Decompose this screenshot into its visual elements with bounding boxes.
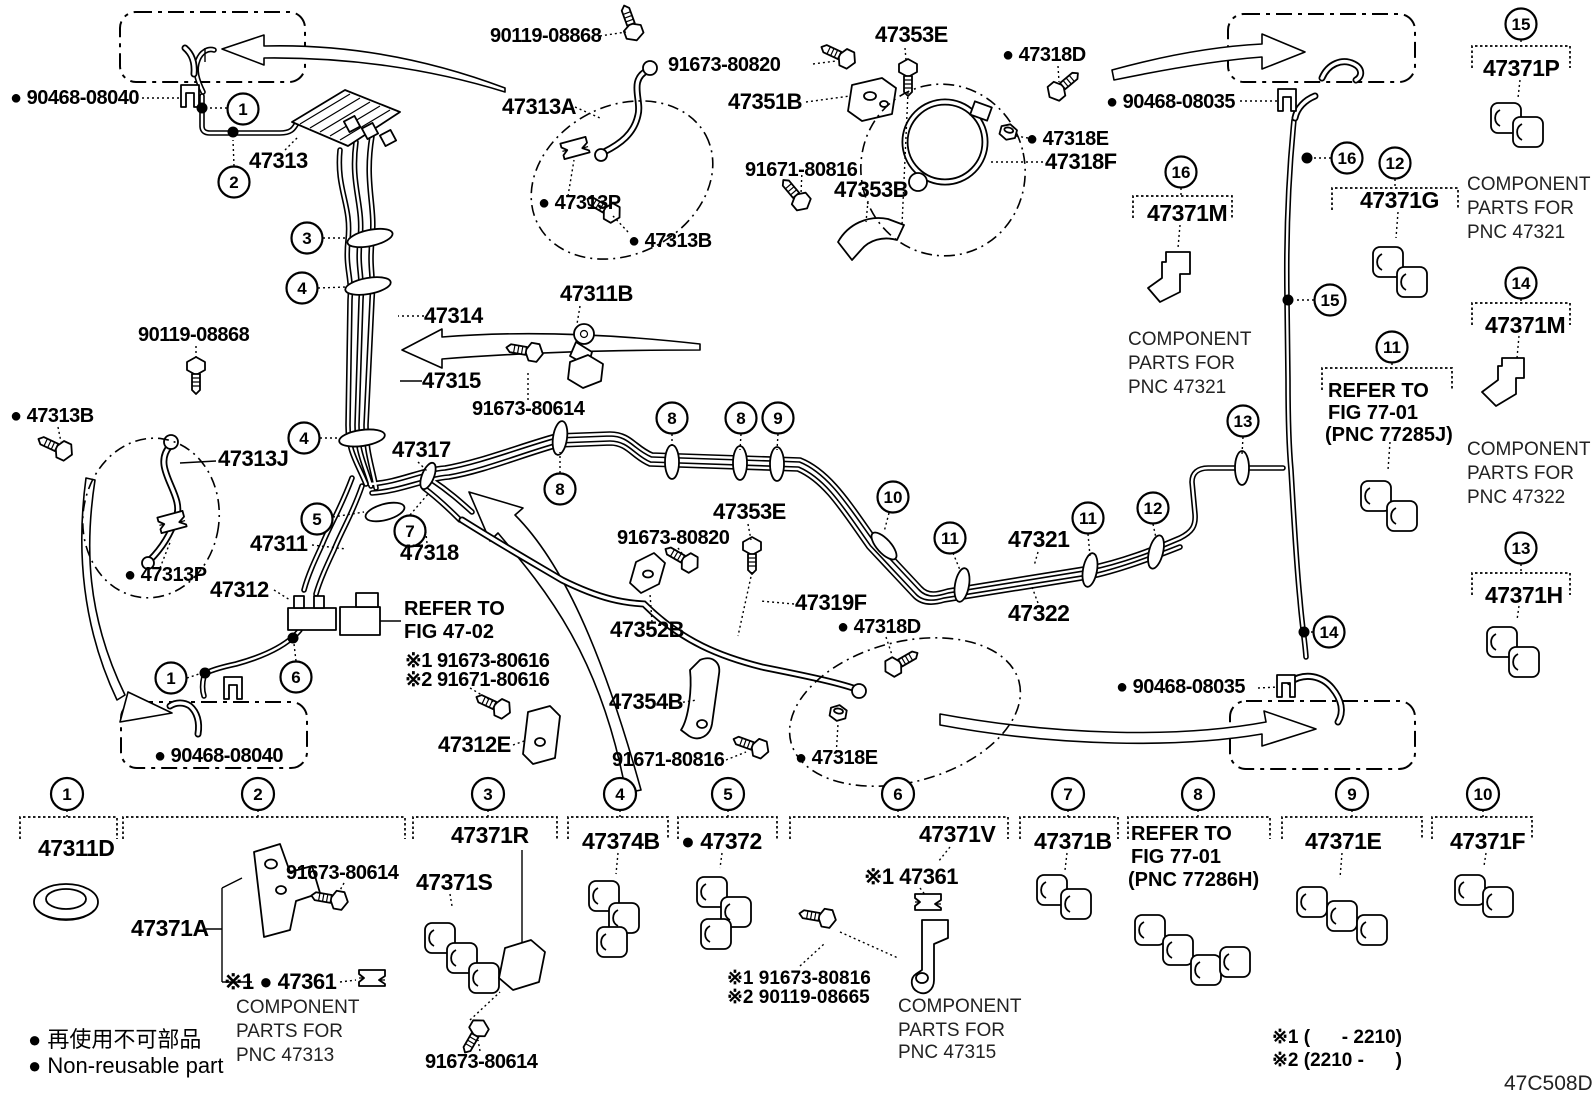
part-label-91673-80820-mid[interactable]: 91673-80820 xyxy=(617,527,730,549)
callout-14-a[interactable]: 14 xyxy=(1506,268,1537,299)
component-note-47315-line2: PARTS FOR xyxy=(898,1020,1005,1041)
bolt-47353E-top xyxy=(899,59,917,96)
clip-90468-08035-top xyxy=(1278,89,1296,111)
clamp-47371R-glyph xyxy=(425,923,545,993)
brake-actuator xyxy=(292,90,400,146)
bracket-47312E xyxy=(523,706,560,764)
part-label-47318E-mid[interactable]: ● 47318E xyxy=(795,747,878,769)
part-label-47315[interactable]: 47315 xyxy=(422,368,481,393)
refer-fig4702-block xyxy=(340,593,401,635)
part-label-47311[interactable]: 47311 xyxy=(250,531,308,556)
callout-group-8[interactable]: 8 xyxy=(1182,778,1214,810)
svg-text:12: 12 xyxy=(1386,154,1405,173)
refer-fig7701a-line1: REFER TO xyxy=(1328,380,1429,402)
part-label-91671-80816-mid[interactable]: 91671-80816 xyxy=(612,749,725,771)
part-label-47371G[interactable]: 47371G xyxy=(1360,187,1439,213)
callout-group-7[interactable]: 7 xyxy=(1052,778,1084,810)
part-label-47319F[interactable]: 47319F xyxy=(795,590,867,615)
diagram-code: 47C508D xyxy=(1504,1072,1592,1095)
bolt-90119-08868-top xyxy=(616,2,646,43)
note-91673-80816-g6[interactable]: ※1 91673-80816 xyxy=(727,968,871,989)
callout-group-5[interactable]: 5 xyxy=(712,778,744,810)
svg-text:14: 14 xyxy=(1320,623,1339,642)
svg-text:13: 13 xyxy=(1512,539,1531,558)
clamp-47371M16-glyph xyxy=(1148,252,1190,302)
callout-15-b[interactable]: 15 xyxy=(1506,9,1537,40)
part-label-47322[interactable]: 47322 xyxy=(1008,600,1069,626)
callout-4-b[interactable]: 4 xyxy=(289,423,320,454)
clamp-47371P-glyph xyxy=(1491,103,1543,147)
svg-text:12: 12 xyxy=(1144,499,1163,518)
component-note-47315-line3: PNC 47315 xyxy=(898,1042,996,1063)
clip-47313P-top xyxy=(560,137,589,159)
callout-10-a[interactable]: 10 xyxy=(878,482,909,513)
part-label-47314[interactable]: 47314 xyxy=(424,303,484,328)
svg-text:9: 9 xyxy=(773,409,782,428)
svg-text:7: 7 xyxy=(405,522,414,541)
clamp-47371B-glyph xyxy=(1037,875,1091,919)
part-label-47312[interactable]: 47312 xyxy=(210,577,269,602)
callout-11-b[interactable]: 11 xyxy=(1073,503,1104,534)
grommet-47311D xyxy=(34,884,98,920)
part-label-91673-80614-g3[interactable]: 91673-80614 xyxy=(425,1051,539,1073)
svg-text:6: 6 xyxy=(893,785,902,804)
svg-text:8: 8 xyxy=(1193,785,1202,804)
callout-group-6[interactable]: 6 xyxy=(882,778,914,810)
bracket-47352B xyxy=(630,553,665,593)
callout-1-a[interactable]: 1 xyxy=(228,94,259,125)
refer-fig7701b-line3: (PNC 77286H) xyxy=(1128,869,1259,891)
svg-text:5: 5 xyxy=(723,785,732,804)
footnote-1: ※1 ( - 2210) xyxy=(1272,1027,1402,1048)
clamp-47371H-glyph xyxy=(1487,627,1539,677)
callout-8-c[interactable]: 8 xyxy=(726,403,757,434)
part-label-47374B[interactable]: 47374B xyxy=(582,828,660,854)
part-label-90468-08040-bottom[interactable]: ● 90468-08040 xyxy=(154,745,283,767)
svg-text:4: 4 xyxy=(299,429,309,448)
svg-text:11: 11 xyxy=(1079,509,1097,528)
part-label-91673-80614-mid[interactable]: 91673-80614 xyxy=(472,398,586,420)
clamp-fig7701a-glyph xyxy=(1361,481,1417,531)
svg-text:10: 10 xyxy=(884,488,903,507)
part-label-47312E[interactable]: 47312E xyxy=(438,732,511,757)
callouts-layer: 1 2 3 4 4 5 7 6 1 8 8 8 9 10 11 11 12 13… xyxy=(51,9,1537,811)
part-label-47318F[interactable]: 47318F xyxy=(1045,149,1117,174)
part-label-47352B[interactable]: 47352B xyxy=(610,617,684,642)
callout-14-b[interactable]: 14 xyxy=(1314,617,1345,648)
part-label-47361-g6[interactable]: ※1 47361 xyxy=(864,864,958,889)
part-label-47313P-mid[interactable]: ● 47313P xyxy=(124,564,207,586)
part-label-47313B-mid[interactable]: ● 47313B xyxy=(10,405,94,427)
part-label-47318D-top[interactable]: ● 47318D xyxy=(1002,44,1086,66)
svg-text:13: 13 xyxy=(1234,412,1253,431)
component-note-47321p-line1: COMPONENT xyxy=(1467,174,1591,195)
callout-group-10[interactable]: 10 xyxy=(1467,778,1499,810)
part-label-47313B-top[interactable]: ● 47313B xyxy=(628,230,712,252)
clamp-47371M14-glyph xyxy=(1482,358,1524,406)
part-label-47313P-top[interactable]: ● 47313P xyxy=(538,192,621,214)
svg-text:7: 7 xyxy=(1063,785,1072,804)
svg-text:3: 3 xyxy=(483,785,492,804)
svg-text:1: 1 xyxy=(238,100,247,119)
part-label-47318D-mid[interactable]: ● 47318D xyxy=(837,616,921,638)
svg-text:6: 6 xyxy=(291,668,300,687)
callout-16-b[interactable]: 16 xyxy=(1166,157,1197,188)
part-label-47371M-16[interactable]: 47371M xyxy=(1147,200,1227,226)
part-label-47321[interactable]: 47321 xyxy=(1008,526,1070,552)
callout-13-a[interactable]: 13 xyxy=(1228,406,1259,437)
callout-8-a[interactable]: 8 xyxy=(545,474,576,505)
svg-text:1: 1 xyxy=(166,669,175,688)
part-label-91673-80820-top[interactable]: 91673-80820 xyxy=(668,54,781,76)
component-note-47321p-line2: PARTS FOR xyxy=(1467,198,1574,219)
bracket-47354B xyxy=(681,658,719,738)
component-note-47313-line3: PNC 47313 xyxy=(236,1045,334,1066)
callout-3[interactable]: 3 xyxy=(292,223,323,254)
component-note-47322-line3: PNC 47322 xyxy=(1467,487,1565,508)
svg-text:4: 4 xyxy=(615,785,625,804)
refer-fig4702-line2: FIG 47-02 xyxy=(404,621,494,643)
part-label-47317[interactable]: 47317 xyxy=(392,437,451,462)
part-label-47318[interactable]: 47318 xyxy=(400,540,459,565)
callout-group-1[interactable]: 1 xyxy=(51,778,83,810)
part-label-47371B[interactable]: 47371B xyxy=(1034,828,1112,854)
bolt-47318D-top xyxy=(1044,66,1084,104)
callout-9-a[interactable]: 9 xyxy=(763,403,794,434)
component-note-47321p-line3: PNC 47321 xyxy=(1467,222,1565,243)
callout-12-b[interactable]: 12 xyxy=(1380,148,1411,179)
part-label-47371H[interactable]: 47371H xyxy=(1485,582,1563,608)
part-label-47313A[interactable]: 47313A xyxy=(502,94,577,119)
bracket-47371A-glyph xyxy=(254,844,320,937)
svg-text:11: 11 xyxy=(1383,338,1401,357)
clip-90468-08035-bottom xyxy=(1277,675,1295,697)
part-label-47371R[interactable]: 47371R xyxy=(451,822,529,848)
part-label-47371E[interactable]: 47371E xyxy=(1305,828,1381,854)
bolt-47313B-mid xyxy=(35,431,76,463)
callout-1-b[interactable]: 1 xyxy=(156,663,187,694)
part-label-47371A[interactable]: 47371A xyxy=(131,915,209,941)
component-note-47313-line1: COMPONENT xyxy=(236,997,360,1018)
callout-16-a[interactable]: 16 xyxy=(1332,143,1363,174)
part-label-47371M-14[interactable]: 47371M xyxy=(1485,312,1565,338)
svg-text:2: 2 xyxy=(253,785,262,804)
component-note-47321m-line1: COMPONENT xyxy=(1128,329,1252,350)
bracket-47353B xyxy=(838,218,904,260)
svg-text:15: 15 xyxy=(1321,291,1340,310)
nut-47318E-top xyxy=(998,122,1018,142)
clamp-47371G-glyph xyxy=(1373,247,1427,297)
svg-text:16: 16 xyxy=(1172,163,1191,182)
svg-text:8: 8 xyxy=(667,409,676,428)
part-label-90119-08868-mid[interactable]: 90119-08868 xyxy=(138,324,250,346)
callout-13-b[interactable]: 13 xyxy=(1506,533,1537,564)
svg-text:11: 11 xyxy=(941,529,959,548)
component-note-47321m-line2: PARTS FOR xyxy=(1128,353,1235,374)
part-label-47371V[interactable]: 47371V xyxy=(919,821,996,847)
refer-fig4702-line1: REFER TO xyxy=(404,598,505,620)
clip-90468-08040-bottom xyxy=(224,677,242,699)
svg-text:5: 5 xyxy=(312,510,321,529)
part-label-47311B[interactable]: 47311B xyxy=(560,281,633,306)
component-note-47321m-line3: PNC 47321 xyxy=(1128,377,1226,398)
component-note-47313-line2: PARTS FOR xyxy=(236,1021,343,1042)
part-label-47354B[interactable]: 47354B xyxy=(609,689,683,714)
hose-ring-assembly xyxy=(905,101,992,191)
bolt-91673-80820-top xyxy=(818,39,859,71)
callout-6[interactable]: 6 xyxy=(281,662,312,693)
legend-en: ● Non-reusable part xyxy=(28,1053,224,1078)
refer-fig7701b-line2: FIG 77-01 xyxy=(1131,846,1221,868)
callout-15-a[interactable]: 15 xyxy=(1315,285,1346,316)
component-note-47315-line1: COMPONENT xyxy=(898,996,1022,1017)
part-label-47353B[interactable]: 47353B xyxy=(834,177,908,202)
callout-group-4[interactable]: 4 xyxy=(604,778,636,810)
svg-text:15: 15 xyxy=(1512,15,1531,34)
svg-text:8: 8 xyxy=(736,409,745,428)
brake-tube-clamp-diagram: 1 2 3 4 4 5 7 6 1 8 8 8 9 10 11 11 12 13… xyxy=(0,0,1592,1099)
nut-47318E-mid xyxy=(829,704,848,723)
parts-diagram-page: 1 2 3 4 4 5 7 6 1 8 8 8 9 10 11 11 12 13… xyxy=(0,0,1592,1099)
part-label-47371S[interactable]: 47371S xyxy=(416,869,492,895)
bolt-47353E-mid xyxy=(743,537,761,574)
part-label-47318E-top[interactable]: ● 47318E xyxy=(1026,128,1109,150)
svg-text:14: 14 xyxy=(1512,274,1531,293)
svg-text:2: 2 xyxy=(229,173,238,192)
part-label-47351B[interactable]: 47351B xyxy=(728,89,802,114)
note-91671-80616[interactable]: ※2 91671-80616 xyxy=(405,669,550,691)
clip-47361-g2[interactable] xyxy=(359,970,385,986)
part-label-47353E-top[interactable]: 47353E xyxy=(875,22,948,47)
part-label-47313[interactable]: 47313 xyxy=(249,148,308,173)
part-label-90468-08035-bottom[interactable]: ● 90468-08035 xyxy=(1116,676,1245,698)
part-label-90468-08035-top[interactable]: ● 90468-08035 xyxy=(1106,91,1235,113)
clamp-fig7701b-glyph xyxy=(1135,915,1250,985)
part-label-47313J[interactable]: 47313J xyxy=(218,446,288,471)
clamp-47371F-glyph xyxy=(1455,875,1513,917)
part-label-47371P[interactable]: 47371P xyxy=(1483,55,1559,81)
component-note-47322-line1: COMPONENT xyxy=(1467,439,1591,460)
legend-jp: ● 再使用不可部品 xyxy=(28,1027,201,1052)
clamp-47372-glyph xyxy=(697,877,751,949)
svg-text:10: 10 xyxy=(1474,785,1493,804)
part-label-47311D[interactable]: 47311D xyxy=(38,835,114,861)
component-note-47322-line2: PARTS FOR xyxy=(1467,463,1574,484)
clip-47313P-mid xyxy=(157,511,186,533)
callout-11-c[interactable]: 11 xyxy=(1377,332,1408,363)
callout-11-a[interactable]: 11 xyxy=(935,523,966,554)
clamp-47371E-glyph xyxy=(1297,887,1387,945)
connector-47312 xyxy=(288,596,336,630)
part-label-47371F[interactable]: 47371F xyxy=(1450,828,1525,854)
callout-group-9[interactable]: 9 xyxy=(1336,778,1368,810)
bracket-47351B xyxy=(848,78,896,121)
part-label-47353E-mid[interactable]: 47353E xyxy=(713,499,786,524)
bolt-90119-08868-mid xyxy=(187,357,205,394)
part-label-47372[interactable]: ● 47372 xyxy=(681,828,762,854)
callout-5[interactable]: 5 xyxy=(302,504,333,535)
part-label-90119-08868-top[interactable]: 90119-08868 xyxy=(490,25,602,47)
refer-fig7701a-line3: (PNC 77285J) xyxy=(1325,424,1453,446)
callout-4-a[interactable]: 4 xyxy=(287,273,318,304)
bolt-47318D-mid xyxy=(881,645,922,679)
refer-fig7701b-line1: REFER TO xyxy=(1131,823,1232,845)
footnote-2: ※2 (2210 - ) xyxy=(1272,1050,1402,1071)
clamp-47374B-glyph xyxy=(589,881,639,957)
clip-90468-08040-top xyxy=(181,85,199,107)
part-label-90468-08040-top[interactable]: ● 90468-08040 xyxy=(10,87,139,109)
svg-text:16: 16 xyxy=(1338,149,1357,168)
svg-text:4: 4 xyxy=(297,279,307,298)
refer-fig7701a-line2: FIG 77-01 xyxy=(1328,402,1418,424)
callout-12-a[interactable]: 12 xyxy=(1138,493,1169,524)
svg-text:1: 1 xyxy=(62,785,71,804)
part-47311B xyxy=(568,324,603,388)
callout-8-b[interactable]: 8 xyxy=(657,403,688,434)
svg-text:9: 9 xyxy=(1347,785,1356,804)
callout-group-2[interactable]: 2 xyxy=(242,778,274,810)
svg-text:3: 3 xyxy=(302,229,311,248)
note-90119-08665-g6[interactable]: ※2 90119-08665 xyxy=(727,987,870,1008)
callout-2[interactable]: 2 xyxy=(219,167,250,198)
bolt-91673-80816-g6 xyxy=(798,905,838,929)
svg-text:8: 8 xyxy=(555,480,564,499)
part-label-91673-80614-g2[interactable]: 91673-80614 xyxy=(286,862,400,884)
callout-group-3[interactable]: 3 xyxy=(472,778,504,810)
bracket-47371V-glyph xyxy=(912,894,948,993)
part-label-47361-g2[interactable]: ※1 ● 47361 xyxy=(224,969,337,994)
